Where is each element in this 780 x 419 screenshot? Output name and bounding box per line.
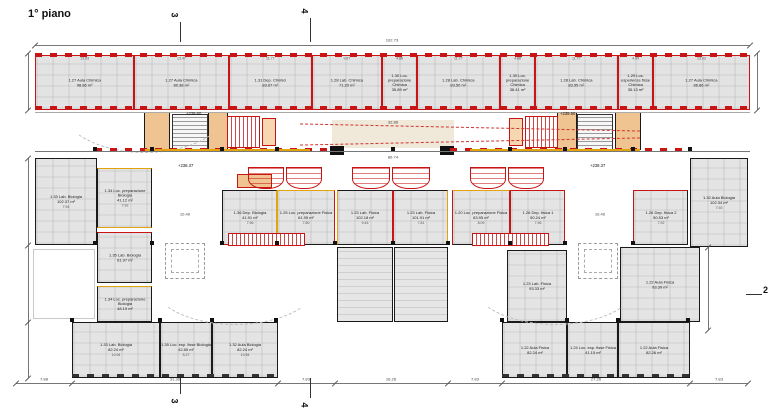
dimension-text: 10.40 [180,212,190,216]
dimension-text: 32.86 [388,120,398,124]
dimension-text: 102.73 [386,38,398,42]
room-label: 1.23 Lab. Fisica101.91 m²7.81 [394,204,447,231]
room-area: 63.95 m² [473,215,489,220]
room-name: 1.29 Loc. esperienze fisse Chimica [619,73,652,87]
stair [577,114,613,150]
dimension-text: 10.40 [595,212,605,216]
column-mark [631,241,635,245]
room-area: 50.24 m² [530,215,546,220]
room-dim: 7.92 [716,206,723,211]
room-name: 1.22 Aula Fisica [646,280,674,285]
room-dim: 9.45 [362,221,369,226]
level-mark: +239.60 [560,112,575,116]
column-mark [686,318,690,322]
room: 1.35 Loc. esp. fisse Biologia42.85 m²5.2… [160,322,212,378]
column-mark [565,318,569,322]
column-mark [275,241,279,245]
room-label: 1.35 Loc. esp. fisse Biologia42.85 m²5.2… [161,337,211,364]
room-area: 102.37 m² [57,199,75,204]
room-area: 42.85 m² [178,348,194,353]
page-title: 1° piano [28,8,71,20]
floor-plan: 1° piano ATRIO 1.27 Aula Chimica98.86 m²… [0,0,780,419]
room-area: 61.95 m² [298,215,314,220]
column-mark [220,147,224,151]
dim-tick [747,42,753,48]
service-box [262,118,276,146]
lecture-bench [470,167,506,189]
level-mark: +239.60 [186,112,201,116]
room-area: 102.34 m² [710,200,728,205]
room: 1.22 Aula Fisica82.24 m² [502,322,567,378]
section-marker: 4 [300,402,310,407]
section-marker-line [310,378,311,398]
room-dim: 8.09 [478,221,485,226]
dim-line-side [28,53,29,110]
wall-line [145,149,310,151]
room-label: 1.24 Loc. esp. fisse Fisica41.15 m² [568,337,617,364]
lecture-bench [508,167,544,189]
room-area: 41.15 m² [585,350,601,355]
room-area: 102.18 m² [356,215,374,220]
room-area: 61.97 m² [117,258,133,263]
room-label: 1.28 Lab. Chimica83.55 m² [536,69,617,96]
lecture-bench [286,167,322,189]
room-area: 82.24 m² [237,348,253,353]
column-mark [93,241,97,245]
stair [525,116,558,148]
column-mark [70,318,74,322]
room-label: 1.32 Aula Biologia102.34 m²7.92 [691,181,747,225]
room-label: 1.32 Aula Biologia82.24 m²10.94 [213,337,277,364]
level-mark: +238.37 [178,164,193,168]
column-mark [150,241,154,245]
room-label: 1.28 Lab. Chimica83.50 m² [418,69,499,96]
room-area: 71.20 m² [339,83,355,88]
room-area: 35.89 m² [392,87,408,92]
room-label: 1.30 Loc. preparazione Chimica35.89 m² [383,69,416,96]
column-mark [508,241,512,245]
room-name: 1.34 Loc. preparazione Biologia [98,188,151,197]
room-area: 82.24 m² [527,350,543,355]
section-marker-line [180,22,181,42]
section-marker-line [746,294,762,295]
room-area: 48.19 m² [117,307,133,312]
room-dim: 10.94 [241,353,250,358]
section-marker-line [310,18,311,42]
room-name: 1.32 Aula Biologia [703,195,735,200]
wall-line [35,151,750,152]
room-area: 41.91 m² [242,215,258,220]
room-area: 35.13 m² [627,87,643,92]
service-box [557,112,577,150]
room-name: 1.27 Aula Chimica [685,78,717,83]
wall-line [470,149,640,151]
dim-line-side [708,247,709,330]
column-mark [500,318,504,322]
level-mark: +238.37 [590,164,605,168]
room-area: 38.41 m² [509,87,525,92]
dimension-text: 86.74 [388,155,398,159]
room: 1.35 Lab. Biologia61.97 m² [97,232,152,283]
room-label: 1.23 Lab. Fisica102.18 m²9.45 [338,204,392,231]
room-label: 1.27 Aula Chimica86.86 m² [654,69,749,96]
lower-floor-outline [33,249,95,319]
room-name: 1.28 Lab. Chimica [560,78,592,83]
room: 1.23 Lab. Fisica102.18 m²9.45 [337,190,393,245]
room-area: 82.26 m² [646,350,662,355]
room-label: 1.30 Loc. preparazione Chimica38.41 m² [501,69,534,96]
room-name: 1.30 Loc. preparazione Chimica [383,73,416,87]
dimension-text: 7.88 [40,377,48,381]
room-dim: 7.94 [63,205,70,210]
room-label: 1.26 Dep. fisica 150.24 m²7.96 [511,204,564,231]
column-mark [391,147,395,151]
column-mark [508,147,512,151]
section-marker: 3 [170,398,180,403]
room-label: 1.33 Lab. Biologia82.24 m²10.94 [73,337,159,364]
room-area: 83.55 m² [568,83,584,88]
column-mark [275,147,279,151]
dim-line-side [28,158,29,378]
dimension-text: 7.83 [715,377,723,381]
dimension-text: 7.83 [302,377,310,381]
column-mark [688,147,692,151]
room-dim: 10.94 [112,353,121,358]
room-name: 1.28 Lab. Chimica [331,78,363,83]
room-label: 1.35 Lab. Biologia61.97 m² [98,245,151,270]
room-label: 1.26 Dep. fisica 250.53 m²7.92 [634,204,687,231]
band-room: 1.28 Lab. Chimica83.55 m²11.77 [535,55,618,110]
section-marker: 4 [300,8,310,13]
room-name: 1.32 Aula Biologia [229,343,261,348]
room: 1.34 Loc. preparazione Biologia41.12 m²7… [97,168,152,228]
room-dim: 4.99 [619,57,652,61]
seating-block [337,247,393,322]
band-room: 1.31 Dep. Chimici83.67 m²11.77 [229,55,312,110]
room-area: 86.86 m² [693,83,709,88]
room-name: 1.26 Dep. fisica 1 [522,210,553,215]
room-area: 83.50 m² [451,83,467,88]
room-label: 1.28 Lab. Chimica71.20 m² [313,69,381,96]
room-name: 1.31 Dep. Chimici [255,78,287,83]
room-area: 101.91 m² [411,215,429,220]
room-name: 1.22 Aula Fisica [640,345,668,350]
room-dim: 13.93 [654,57,749,61]
dim-line-side [757,53,758,110]
room-dim: 11.77 [536,57,617,61]
room-name: 1.33 Lab. Biologia [50,194,82,199]
stair [227,116,260,148]
room-name: 1.20 Loc. preparazione Fisica [455,210,507,215]
band-room: 1.30 Loc. preparazione Chimica38.41 m²4.… [500,55,535,110]
band-room: 1.30 Loc. preparazione Chimica35.89 m²4.… [382,55,417,110]
dimension-text: 31.30 [170,377,180,381]
room-dim: 7.81 [417,221,424,226]
room: 1.33 Lab. Biologia82.24 m²10.94 [72,322,160,378]
room-name: 1.22 Aula Fisica [520,345,548,350]
dim-tick [705,327,711,333]
room-name: 1.30 Loc. preparazione Chimica [501,73,534,87]
dimension-text: 7.83 [471,377,479,381]
column-mark [158,318,162,322]
room-label: 1.33 Lab. Biologia102.37 m²7.94 [36,180,96,223]
room-area: 83.67 m² [263,83,279,88]
room-dim: 11.77 [418,57,499,61]
dimension-text: 16.26 [386,377,396,381]
window-strip [35,53,750,57]
room-dim: 5.27 [183,353,190,358]
room-name: 1.28 Lab. Chimica [442,78,474,83]
room: 1.23 Lab. Fisica101.91 m²7.81 [393,190,448,245]
column-mark [446,147,450,151]
room-area: 93.39 m² [652,285,668,290]
room-name: 1.36 Dep. Biologia [233,210,266,215]
room-name: 1.35 Loc. esp. fisse Biologia [161,343,211,348]
room-area: 41.12 m² [117,198,133,203]
room-name: 1.23 Lab. Fisica [406,210,434,215]
column-mark [93,147,97,151]
room-dim: 9.87 [313,57,381,61]
room-label: 1.29 Loc. esperienze fisse Chimica35.13 … [619,69,652,96]
dim-tick [25,107,31,113]
column-mark [220,241,224,245]
room-name: 1.33 Lab. Biologia [100,343,132,348]
path-arc [150,235,320,325]
path-arc [470,235,640,325]
dim-line-top [35,45,750,46]
room: 1.34 Loc. preparazione Biologia48.19 m² [97,286,152,322]
room-name: 1.26 Dep. fisica 2 [645,210,676,215]
room-area: 82.24 m² [108,348,124,353]
wall-line [35,112,750,113]
column-mark [333,241,337,245]
column-mark [391,241,395,245]
column-mark [563,241,567,245]
room-dim: 4.88 [501,57,534,61]
room-dim: 7.96 [246,221,253,226]
band-room: 1.28 Lab. Chimica71.20 m²9.87 [312,55,382,110]
column-mark [150,147,154,151]
seating-block [394,247,448,322]
dim-tick [25,375,31,381]
room-dim: 7.92 [121,203,128,208]
section-marker: 3 [170,12,180,17]
room-name: 1.23 Lab. Fisica [351,210,379,215]
room-label: 1.20 Loc. preparazione Fisica63.95 m²8.0… [453,204,509,231]
column-mark [563,147,567,151]
column-mark [631,147,635,151]
room-label: 1.34 Loc. preparazione Biologia41.12 m²7… [98,184,151,213]
lecture-bench [352,167,390,189]
room-label: 1.22 Aula Fisica82.26 m² [619,337,689,364]
room-name: 1.35 Lab. Biologia [108,253,140,258]
dim-line-bottom [16,383,748,384]
dim-tick [745,380,751,386]
dim-tick [754,107,760,113]
room: 1.33 Lab. Biologia102.37 m²7.94 [35,158,97,245]
band-room: 1.27 Aula Chimica86.86 m²13.93 [653,55,750,110]
room-name: 1.25 Loc. preparazione Fisica [280,210,332,215]
band-room: 1.29 Loc. esperienze fisse Chimica35.13 … [618,55,653,110]
room-label: 1.34 Loc. preparazione Biologia48.19 m² [98,296,151,313]
section-marker: 2 [763,285,768,295]
dimension-text: 27.26 [591,377,601,381]
room: 1.22 Aula Fisica82.26 m² [618,322,690,378]
column-mark [274,318,278,322]
room-dim: 11.77 [230,57,311,61]
column-mark [333,147,337,151]
column-mark [210,318,214,322]
lecture-bench [392,167,430,189]
service-box [509,118,523,146]
lecture-bench [248,167,284,189]
room-dim: 4.88 [383,57,416,61]
room-label: 1.22 Aula Fisica82.24 m² [503,337,566,364]
room: 1.26 Dep. fisica 250.53 m²7.92 [633,190,688,245]
room: 1.24 Loc. esp. fisse Fisica41.15 m² [567,322,618,378]
column-mark [446,241,450,245]
band-room: 1.28 Lab. Chimica83.50 m²11.77 [417,55,500,110]
room: 1.32 Aula Biologia102.34 m²7.92 [690,158,748,247]
room: 1.32 Aula Biologia82.24 m²10.94 [212,322,278,378]
section-marker-line [180,378,181,394]
room-name: 1.34 Loc. preparazione Biologia [98,297,151,306]
room-dim: 7.92 [657,221,664,226]
column-mark [616,318,620,322]
room-area: 50.53 m² [653,215,669,220]
window-strip [35,106,750,110]
room-name: 1.24 Loc. esp. fisse Fisica [569,345,615,350]
room-dim: 7.80 [303,221,310,226]
room-label: 1.31 Dep. Chimici83.67 m² [230,69,311,96]
room-label: 1.36 Dep. Biologia41.91 m²7.96 [223,204,276,231]
room-dim: 7.96 [534,221,541,226]
room-label: 1.25 Loc. preparazione Fisica61.95 m²7.8… [278,204,334,231]
